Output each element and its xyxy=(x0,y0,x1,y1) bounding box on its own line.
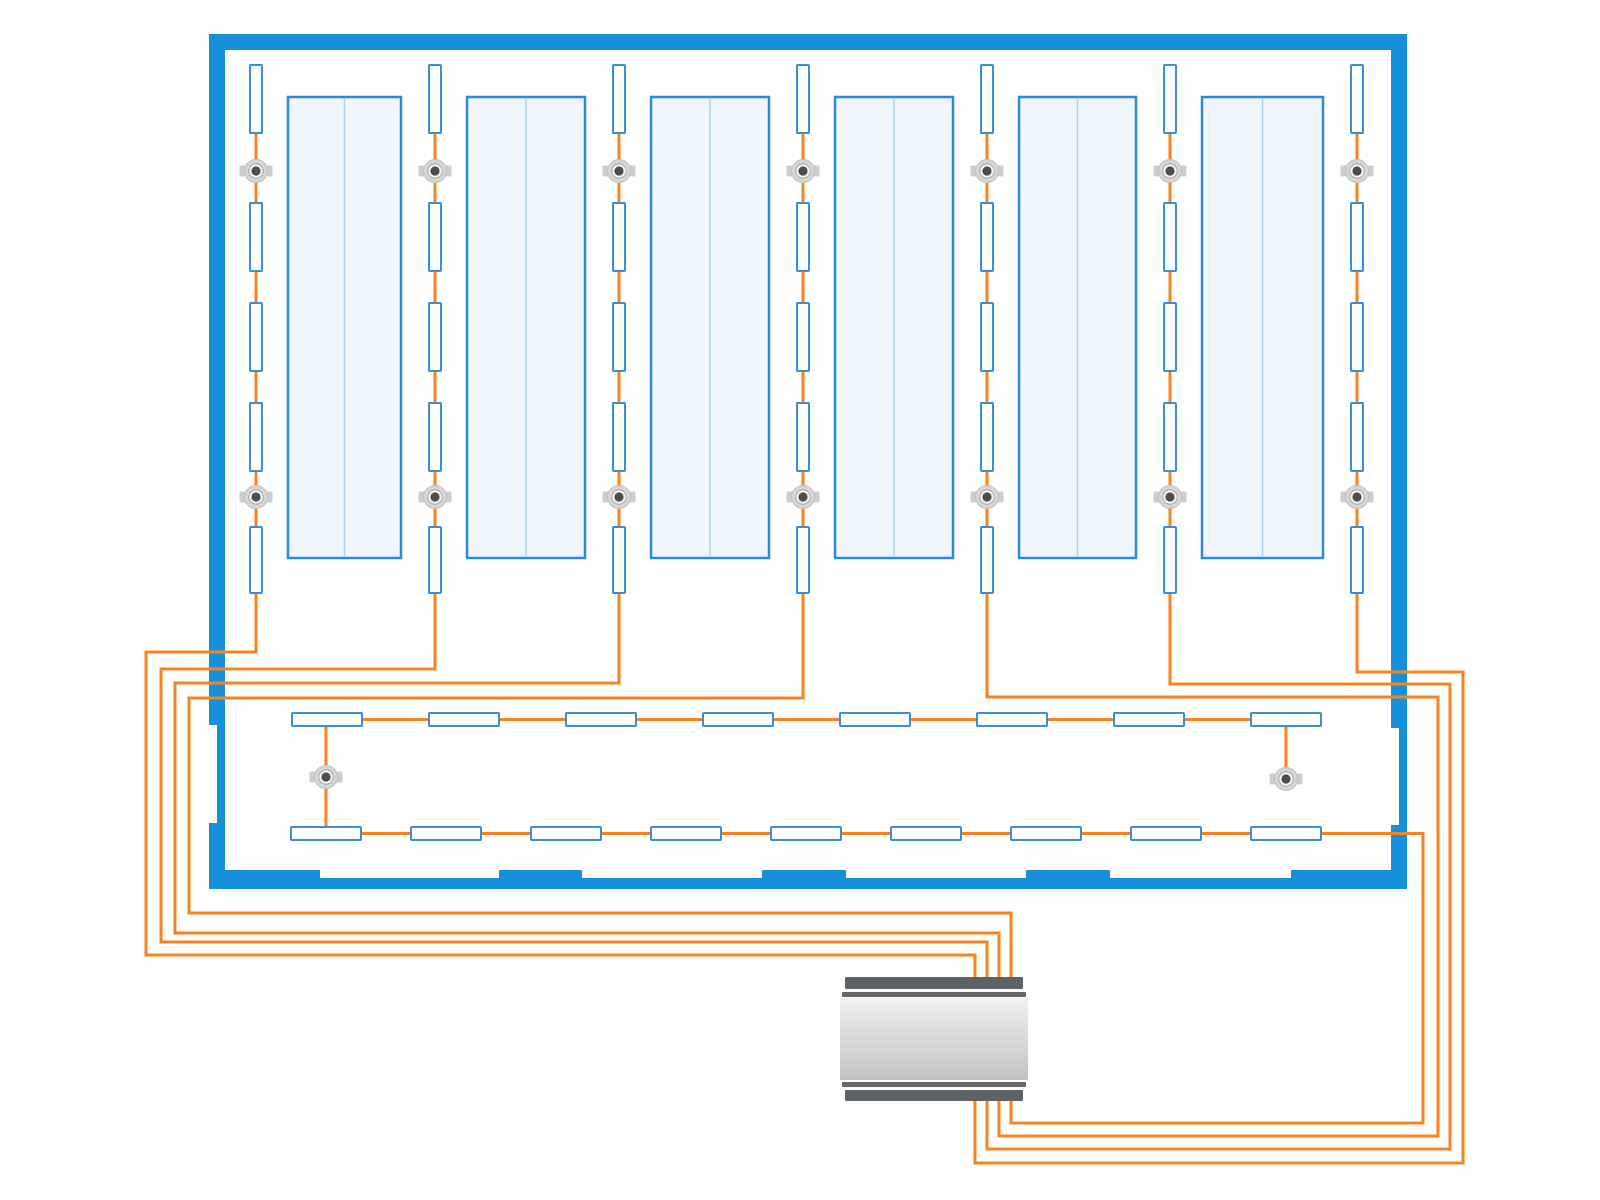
row-bottom-light-fixture-3 xyxy=(531,827,601,840)
wall-top xyxy=(209,34,1407,50)
door-bottom-2 xyxy=(582,870,762,878)
row-bottom-light-fixture-9 xyxy=(1251,827,1321,840)
node-core xyxy=(1352,492,1361,501)
chain-2-light-fixture-5 xyxy=(429,527,441,593)
node-core xyxy=(798,492,807,501)
facility-wiring-diagram xyxy=(0,0,1600,1200)
row-bottom-light-fixture-5 xyxy=(771,827,841,840)
node-core xyxy=(430,492,439,501)
chain-2-light-fixture-3 xyxy=(429,303,441,371)
node-core xyxy=(430,166,439,175)
node-core xyxy=(251,166,260,175)
chain-5-light-fixture-3 xyxy=(981,303,993,371)
chain-4-light-fixture-3 xyxy=(797,303,809,371)
controller-unit xyxy=(840,977,1028,1101)
controller-cap-bottom xyxy=(845,1090,1023,1101)
node-core xyxy=(1165,166,1174,175)
chain-2-light-fixture-2 xyxy=(429,203,441,271)
chain-5-light-fixture-2 xyxy=(981,203,993,271)
node-core xyxy=(321,772,330,781)
node-core xyxy=(251,492,260,501)
chain-4-light-fixture-5 xyxy=(797,527,809,593)
chain-2-light-fixture-1 xyxy=(429,65,441,133)
row-bottom-light-fixture-7 xyxy=(1011,827,1081,840)
chain-4-light-fixture-1 xyxy=(797,65,809,133)
chain-5-light-fixture-4 xyxy=(981,403,993,471)
chain-3-light-fixture-2 xyxy=(613,203,625,271)
row-top-light-fixture-8 xyxy=(1251,713,1321,726)
chain-7-light-fixture-4 xyxy=(1351,403,1363,471)
row-top-light-fixture-3 xyxy=(566,713,636,726)
door-bottom-3 xyxy=(846,870,1026,878)
row-top-light-fixture-7 xyxy=(1114,713,1184,726)
chain-1-light-fixture-4 xyxy=(250,403,262,471)
chain-7-light-fixture-1 xyxy=(1351,65,1363,133)
door-right xyxy=(1391,728,1399,825)
controller-ring-top xyxy=(842,992,1026,997)
node-core xyxy=(1281,774,1290,783)
chain-7-light-fixture-5 xyxy=(1351,527,1363,593)
door-left xyxy=(209,725,217,823)
controller-ring-bottom xyxy=(842,1082,1026,1087)
row-top-light-fixture-1 xyxy=(292,713,362,726)
chain-1-light-fixture-5 xyxy=(250,527,262,593)
row-bottom-light-fixture-6 xyxy=(891,827,961,840)
chain-1-light-fixture-3 xyxy=(250,303,262,371)
node-core xyxy=(798,166,807,175)
chain-7-light-fixture-3 xyxy=(1351,303,1363,371)
row-top-light-fixture-4 xyxy=(703,713,773,726)
chain-3-light-fixture-4 xyxy=(613,403,625,471)
row-bottom-light-fixture-8 xyxy=(1131,827,1201,840)
chain-6-light-fixture-2 xyxy=(1164,203,1176,271)
row-bottom-light-fixture-1 xyxy=(291,827,361,840)
node-core xyxy=(982,492,991,501)
node-core xyxy=(982,166,991,175)
controller-body xyxy=(840,998,1028,1080)
chain-6-light-fixture-4 xyxy=(1164,403,1176,471)
chain-4-light-fixture-4 xyxy=(797,403,809,471)
row-bottom-light-fixture-4 xyxy=(651,827,721,840)
chain-6-light-fixture-5 xyxy=(1164,527,1176,593)
door-bottom-4 xyxy=(1110,870,1291,878)
row-top-light-fixture-6 xyxy=(977,713,1047,726)
node-core xyxy=(614,492,623,501)
chain-6-light-fixture-1 xyxy=(1164,65,1176,133)
chain-2-light-fixture-4 xyxy=(429,403,441,471)
chain-7-light-fixture-2 xyxy=(1351,203,1363,271)
node-core xyxy=(1352,166,1361,175)
chain-5-light-fixture-5 xyxy=(981,527,993,593)
row-top-light-fixture-5 xyxy=(840,713,910,726)
door-bottom-1 xyxy=(320,870,499,878)
controller-cap-top xyxy=(845,977,1023,989)
chain-3-light-fixture-1 xyxy=(613,65,625,133)
chain-6-light-fixture-3 xyxy=(1164,303,1176,371)
diagram-canvas xyxy=(0,0,1600,1200)
chain-1-light-fixture-2 xyxy=(250,203,262,271)
row-bottom-light-fixture-2 xyxy=(411,827,481,840)
chain-3-light-fixture-5 xyxy=(613,527,625,593)
row-top-light-fixture-2 xyxy=(429,713,499,726)
node-core xyxy=(614,166,623,175)
chain-4-light-fixture-2 xyxy=(797,203,809,271)
node-core xyxy=(1165,492,1174,501)
chain-1-light-fixture-1 xyxy=(250,65,262,133)
chain-5-light-fixture-1 xyxy=(981,65,993,133)
chain-3-light-fixture-3 xyxy=(613,303,625,371)
